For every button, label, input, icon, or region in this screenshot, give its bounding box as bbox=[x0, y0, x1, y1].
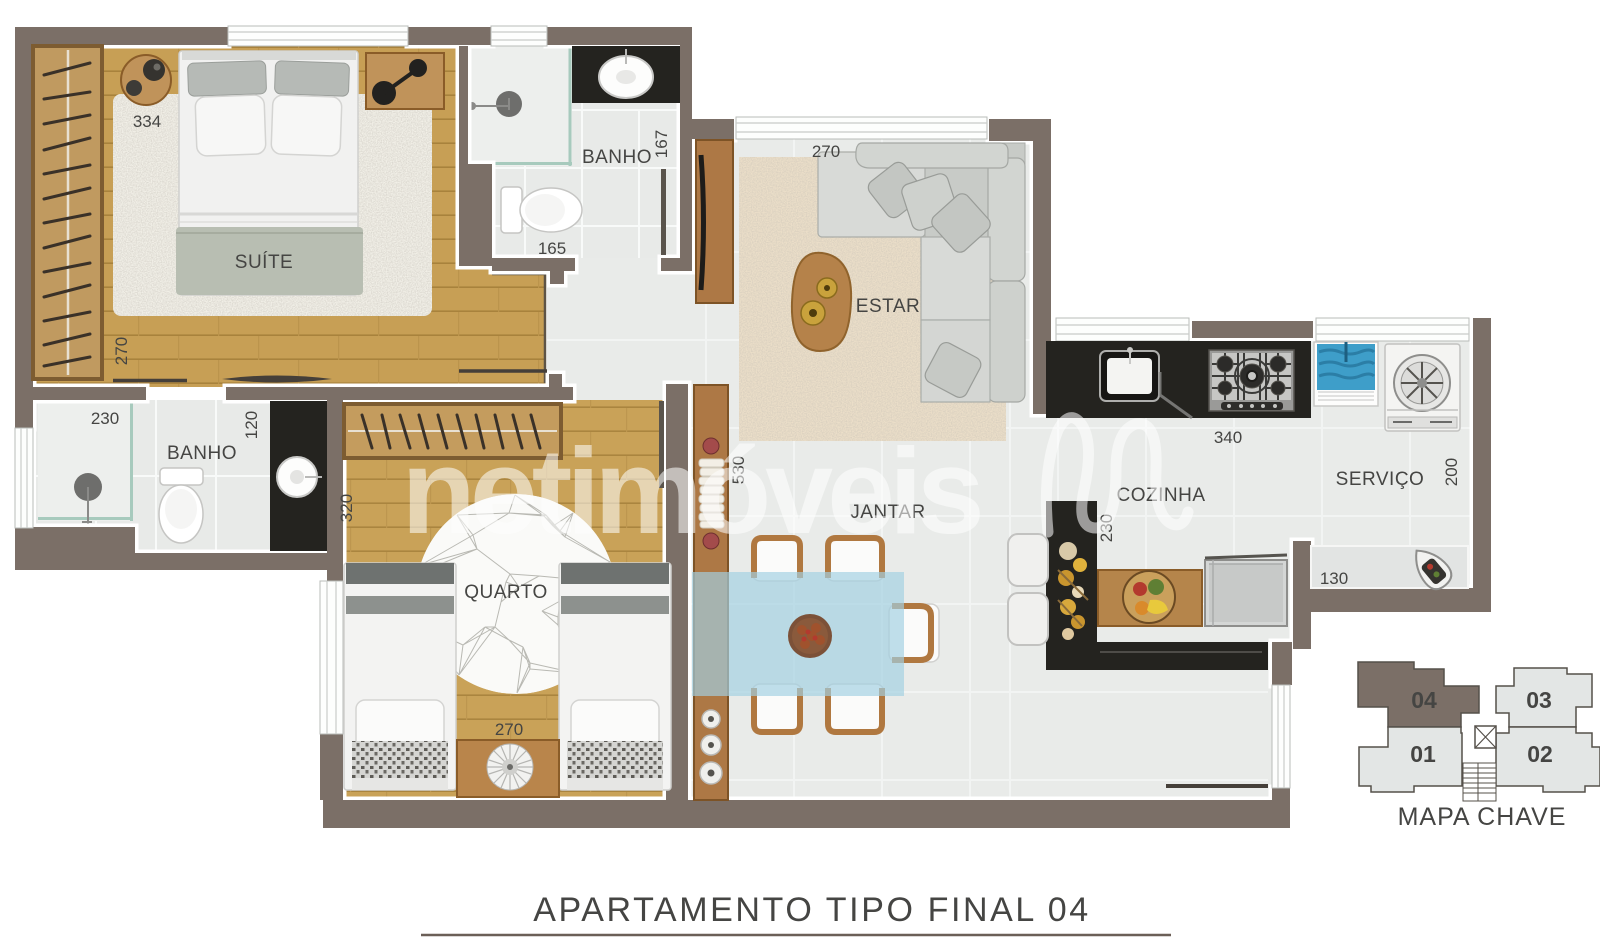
svg-text:165: 165 bbox=[538, 239, 566, 258]
svg-text:130: 130 bbox=[1320, 569, 1348, 588]
svg-text:320: 320 bbox=[337, 494, 356, 522]
svg-text:MAPA CHAVE: MAPA CHAVE bbox=[1398, 803, 1567, 831]
svg-text:APARTAMENTO TIPO FINAL 04: APARTAMENTO TIPO FINAL 04 bbox=[533, 891, 1091, 929]
svg-text:ESTAR: ESTAR bbox=[856, 296, 920, 317]
svg-text:BANHO: BANHO bbox=[582, 147, 652, 168]
svg-text:270: 270 bbox=[112, 337, 131, 365]
svg-text:120: 120 bbox=[242, 411, 261, 439]
svg-text:200: 200 bbox=[1442, 458, 1461, 486]
svg-text:340: 340 bbox=[1214, 428, 1242, 447]
svg-text:SUÍTE: SUÍTE bbox=[235, 252, 293, 273]
svg-text:230: 230 bbox=[91, 409, 119, 428]
svg-text:270: 270 bbox=[812, 142, 840, 161]
svg-text:167: 167 bbox=[652, 130, 671, 158]
svg-text:01: 01 bbox=[1410, 741, 1436, 767]
svg-text:QUARTO: QUARTO bbox=[464, 582, 548, 603]
svg-text:netimóveis: netimóveis bbox=[401, 423, 979, 559]
svg-text:02: 02 bbox=[1527, 741, 1553, 767]
svg-text:SERVIÇO: SERVIÇO bbox=[1336, 469, 1425, 490]
svg-text:03: 03 bbox=[1526, 687, 1552, 713]
svg-text:BANHO: BANHO bbox=[167, 443, 237, 464]
svg-text:270: 270 bbox=[495, 720, 523, 739]
svg-text:04: 04 bbox=[1411, 687, 1437, 713]
svg-text:334: 334 bbox=[133, 112, 161, 131]
